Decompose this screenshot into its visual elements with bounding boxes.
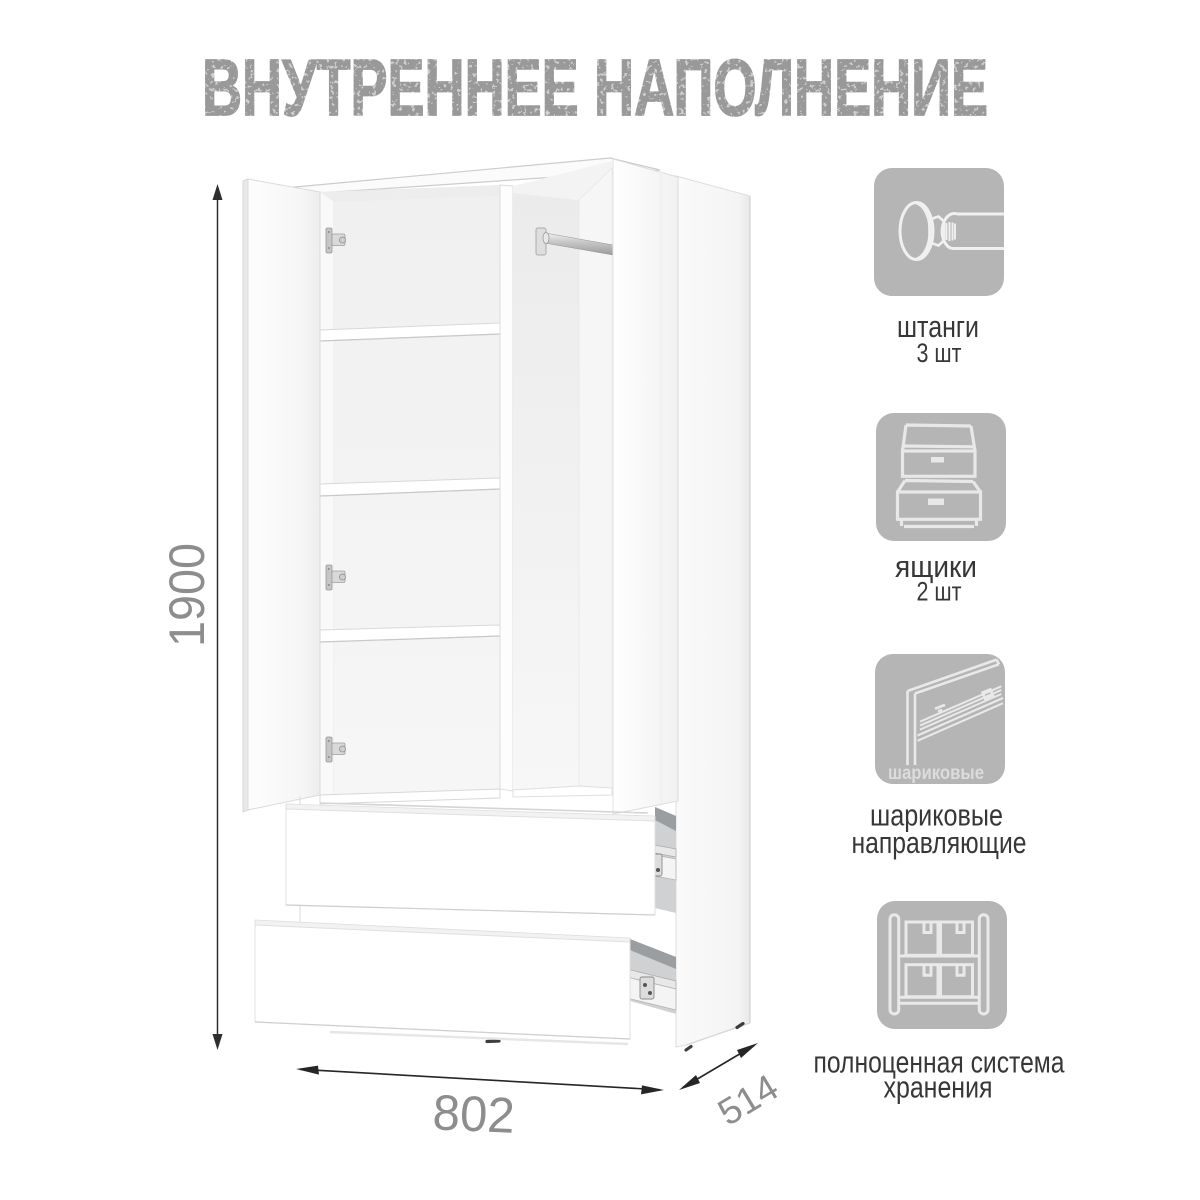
svg-text:802: 802 bbox=[432, 1084, 516, 1144]
svg-text:шариковые: шариковые bbox=[888, 763, 984, 784]
svg-text:3 шт: 3 шт bbox=[917, 338, 962, 368]
svg-text:1900: 1900 bbox=[159, 543, 215, 647]
svg-text:ВНУТРЕННЕЕ НАПОЛНЕНИЕ: ВНУТРЕННЕЕ НАПОЛНЕНИЕ bbox=[202, 43, 988, 132]
svg-text:направляющие: направляющие bbox=[852, 825, 1027, 860]
svg-text:хранения: хранения bbox=[884, 1070, 993, 1105]
svg-text:2 шт: 2 шт bbox=[917, 577, 962, 607]
